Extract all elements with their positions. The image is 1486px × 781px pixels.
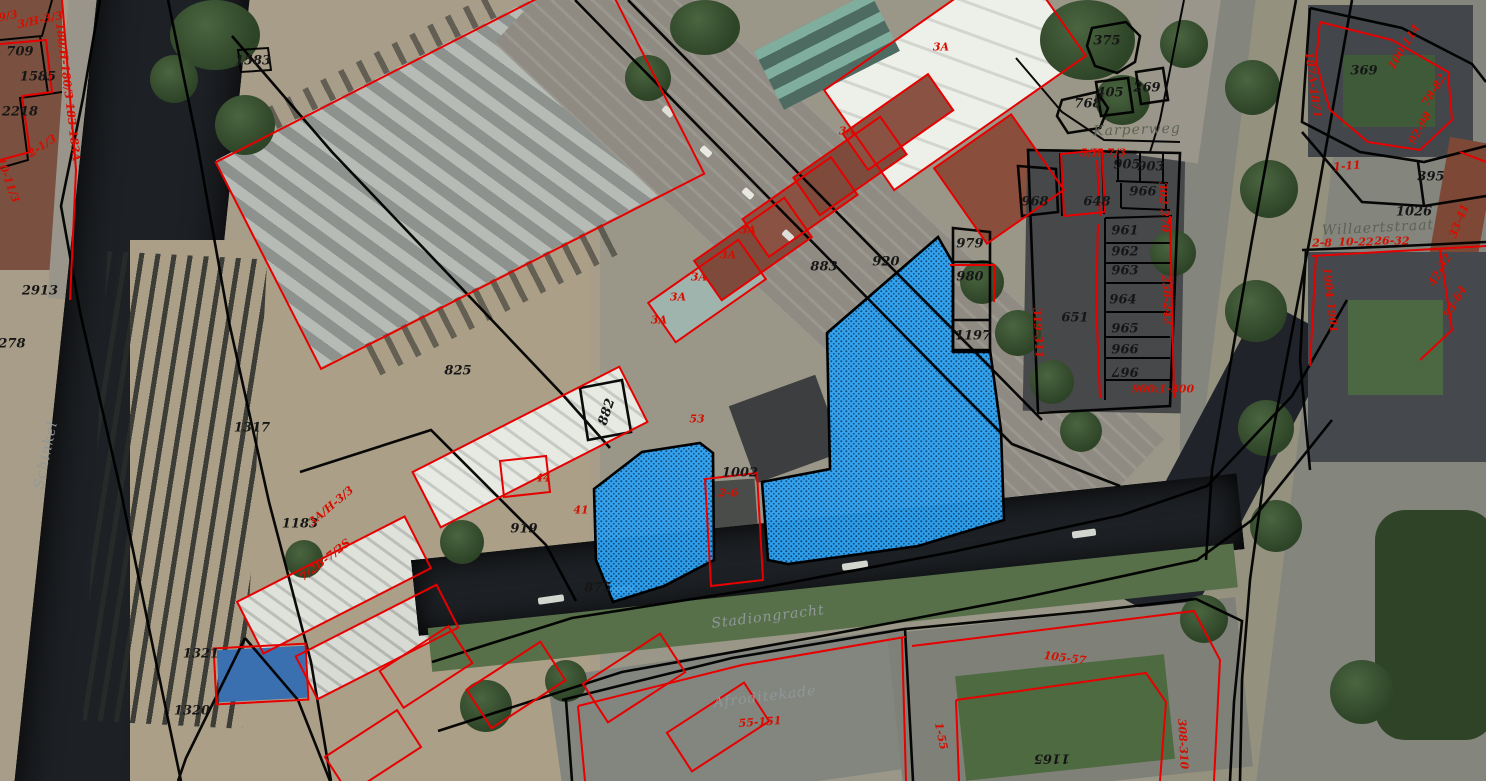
selected-parcel-small[interactable] bbox=[594, 443, 714, 602]
selected-parcels-layer bbox=[594, 237, 1004, 602]
cadastral-map-viewport[interactable]: 7091585221815832913278131782588392097998… bbox=[0, 0, 1486, 781]
cadastral-overlay bbox=[0, 0, 1486, 781]
